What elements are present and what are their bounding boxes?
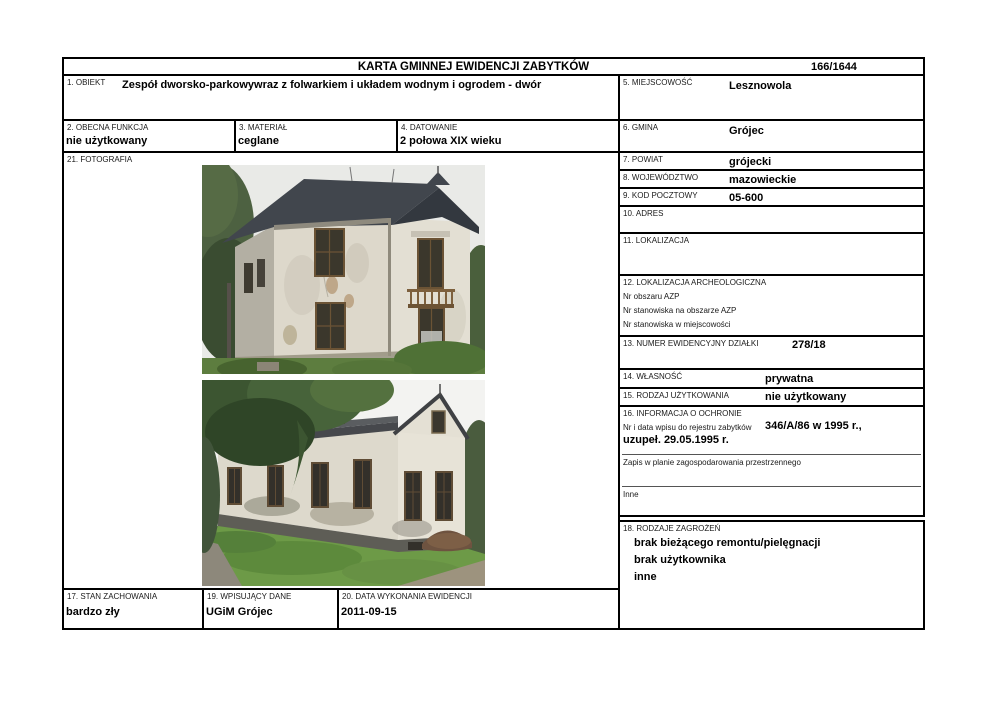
field-miejscowosc-value: Lesznowola	[729, 80, 791, 93]
field-wlasnosc-label: 14. WŁASNOŚĆ	[623, 372, 682, 382]
field-numer-dzialki-value: 278/18	[792, 339, 826, 352]
field-rodzaje-zagrozen-label: 18. RODZAJE ZAGROŻEŃ	[623, 524, 720, 534]
field-lokalizacja: 11. LOKALIZACJA	[618, 232, 925, 276]
field-data-wykonania-label: 20. DATA WYKONANIA EWIDENCJI	[342, 592, 472, 602]
zagrozenie-line-2: brak użytkownika	[634, 554, 726, 567]
field-numer-dzialki-label: 13. NUMER EWIDENCYJNY DZIAŁKI	[623, 339, 758, 349]
field-lokalizacja-archeologiczna-label: 12. LOKALIZACJA ARCHEOLOGICZNA	[623, 278, 766, 288]
photo-manor-two-story-illustration	[202, 165, 485, 374]
zagrozenie-line-1: brak bieżącego remontu/pielęgnacji	[634, 537, 820, 550]
field-stan-zachowania: 17. STAN ZACHOWANIA bardzo zły	[62, 588, 204, 630]
rejestr-value-2: uzupeł. 29.05.1995 r.	[623, 434, 729, 447]
field-stan-zachowania-label: 17. STAN ZACHOWANIA	[67, 592, 157, 602]
field-numer-dzialki: 13. NUMER EWIDENCYJNY DZIAŁKI 278/18	[618, 335, 925, 370]
field-stan-zachowania-value: bardzo zły	[66, 606, 120, 619]
inne-label: Inne	[623, 490, 639, 500]
field-lokalizacja-label: 11. LOKALIZACJA	[623, 236, 689, 246]
field-datowanie: 4. DATOWANIE 2 połowa XIX wieku	[396, 119, 620, 153]
card-title: KARTA GMINNEJ EWIDENCJI ZABYTKÓW	[64, 60, 883, 74]
card-number: 166/1644	[774, 60, 894, 74]
field-powiat-label: 7. POWIAT	[623, 155, 663, 165]
azp-line-1: Nr obszaru AZP	[623, 292, 679, 302]
field-obecna-funkcja-value: nie użytkowany	[66, 135, 147, 148]
field-wpisujacy-dane: 19. WPISUJĄCY DANE UGiM Grójec	[202, 588, 339, 630]
field-fotografia: 21. FOTOGRAFIA	[62, 151, 620, 590]
field-rodzaj-uzytkowania: 15. RODZAJ UŻYTKOWANIA nie użytkowany	[618, 387, 925, 407]
ochrona-divider-2	[622, 486, 921, 487]
field-fotografia-label: 21. FOTOGRAFIA	[67, 155, 132, 165]
rejestr-label: Nr i data wpisu do rejestru zabytków	[623, 423, 752, 433]
field-kod-pocztowy-value: 05-600	[729, 192, 763, 205]
zapis-label: Zapis w planie zagospodarowania przestrz…	[623, 458, 801, 468]
field-kod-pocztowy-label: 9. KOD POCZTOWY	[623, 191, 698, 201]
field-wojewodztwo-value: mazowieckie	[729, 174, 796, 187]
rejestr-value: 346/A/86 w 1995 r.,	[765, 420, 862, 433]
field-rodzaj-uzytkowania-label: 15. RODZAJ UŻYTKOWANIA	[623, 391, 729, 401]
field-gmina: 6. GMINA Grójec	[618, 119, 925, 153]
field-wojewodztwo: 8. WOJEWÓDZTWO mazowieckie	[618, 169, 925, 189]
field-informacja-o-ochronie: 16. INFORMACJA O OCHRONIE Nr i data wpis…	[618, 405, 925, 517]
field-wojewodztwo-label: 8. WOJEWÓDZTWO	[623, 173, 698, 183]
field-wpisujacy-dane-value: UGiM Grójec	[206, 606, 273, 619]
field-powiat: 7. POWIAT grójecki	[618, 151, 925, 171]
field-material: 3. MATERIAŁ ceglane	[234, 119, 398, 153]
field-rodzaje-zagrozen: 18. RODZAJE ZAGROŻEŃ brak bieżącego remo…	[618, 520, 925, 630]
field-obecna-funkcja-label: 2. OBECNA FUNKCJA	[67, 123, 148, 133]
zagrozenie-line-3: inne	[634, 571, 657, 584]
document-page: KARTA GMINNEJ EWIDENCJI ZABYTKÓW 166/164…	[0, 0, 992, 701]
azp-line-3: Nr stanowiska w miejscowości	[623, 320, 731, 330]
field-datowanie-value: 2 połowa XIX wieku	[400, 135, 501, 148]
field-wlasnosc: 14. WŁASNOŚĆ prywatna	[618, 368, 925, 389]
field-miejscowosc: 5. MIEJSCOWOŚĆ Lesznowola	[618, 74, 925, 121]
field-kod-pocztowy: 9. KOD POCZTOWY 05-600	[618, 187, 925, 207]
field-obecna-funkcja: 2. OBECNA FUNKCJA nie użytkowany	[62, 119, 236, 153]
field-miejscowosc-label: 5. MIEJSCOWOŚĆ	[623, 78, 692, 88]
field-lokalizacja-archeologiczna: 12. LOKALIZACJA ARCHEOLOGICZNA Nr obszar…	[618, 274, 925, 337]
photo-manor-single-story-illustration	[202, 380, 485, 586]
field-wlasnosc-value: prywatna	[765, 373, 813, 386]
field-adres: 10. ADRES	[618, 205, 925, 234]
field-adres-label: 10. ADRES	[623, 209, 663, 219]
record-card: KARTA GMINNEJ EWIDENCJI ZABYTKÓW 166/164…	[62, 57, 925, 630]
ochrona-divider-1	[622, 454, 921, 455]
field-gmina-label: 6. GMINA	[623, 123, 658, 133]
field-obiekt: 1. OBIEKT Zespół dworsko-parkowywraz z f…	[62, 74, 620, 121]
field-material-label: 3. MATERIAŁ	[239, 123, 287, 133]
field-obiekt-label: 1. OBIEKT	[67, 78, 105, 88]
azp-line-2: Nr stanowiska na obszarze AZP	[623, 306, 736, 316]
field-obiekt-value: Zespół dworsko-parkowywraz z folwarkiem …	[122, 79, 541, 92]
field-data-wykonania-value: 2011-09-15	[341, 606, 397, 619]
field-gmina-value: Grójec	[729, 125, 764, 138]
field-rodzaj-uzytkowania-value: nie użytkowany	[765, 391, 846, 404]
field-informacja-o-ochronie-label: 16. INFORMACJA O OCHRONIE	[623, 409, 742, 419]
field-data-wykonania: 20. DATA WYKONANIA EWIDENCJI 2011-09-15	[337, 588, 620, 630]
field-datowanie-label: 4. DATOWANIE	[401, 123, 457, 133]
photo-manor-two-story	[202, 165, 485, 374]
field-material-value: ceglane	[238, 135, 279, 148]
photo-manor-single-story	[202, 380, 485, 586]
field-wpisujacy-dane-label: 19. WPISUJĄCY DANE	[207, 592, 291, 602]
field-powiat-value: grójecki	[729, 156, 771, 169]
